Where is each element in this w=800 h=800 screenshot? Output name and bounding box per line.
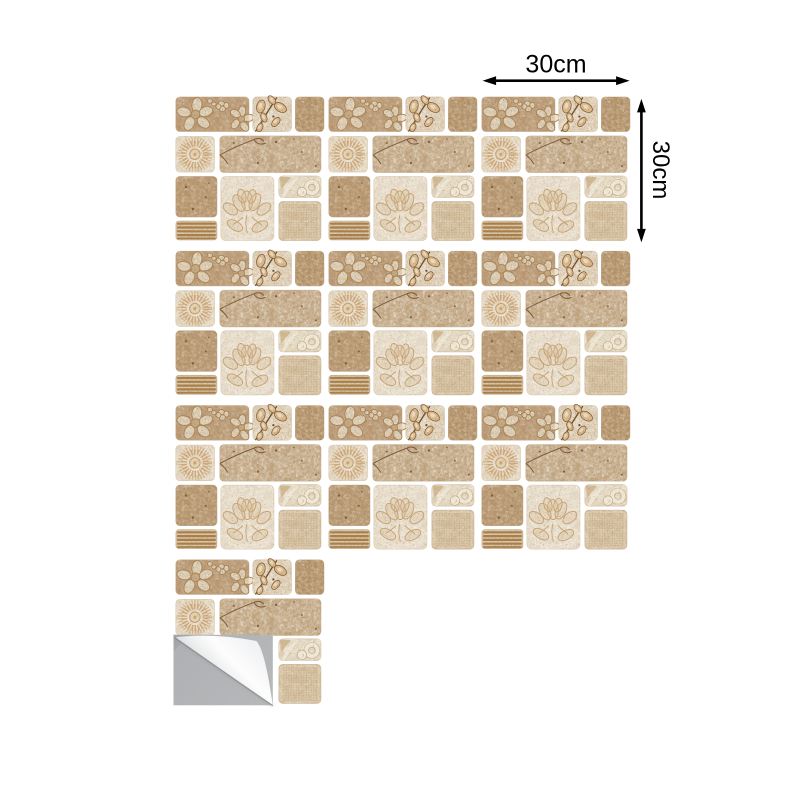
svg-text:30cm: 30cm [525,51,586,79]
svg-text:30cm: 30cm [647,141,674,200]
